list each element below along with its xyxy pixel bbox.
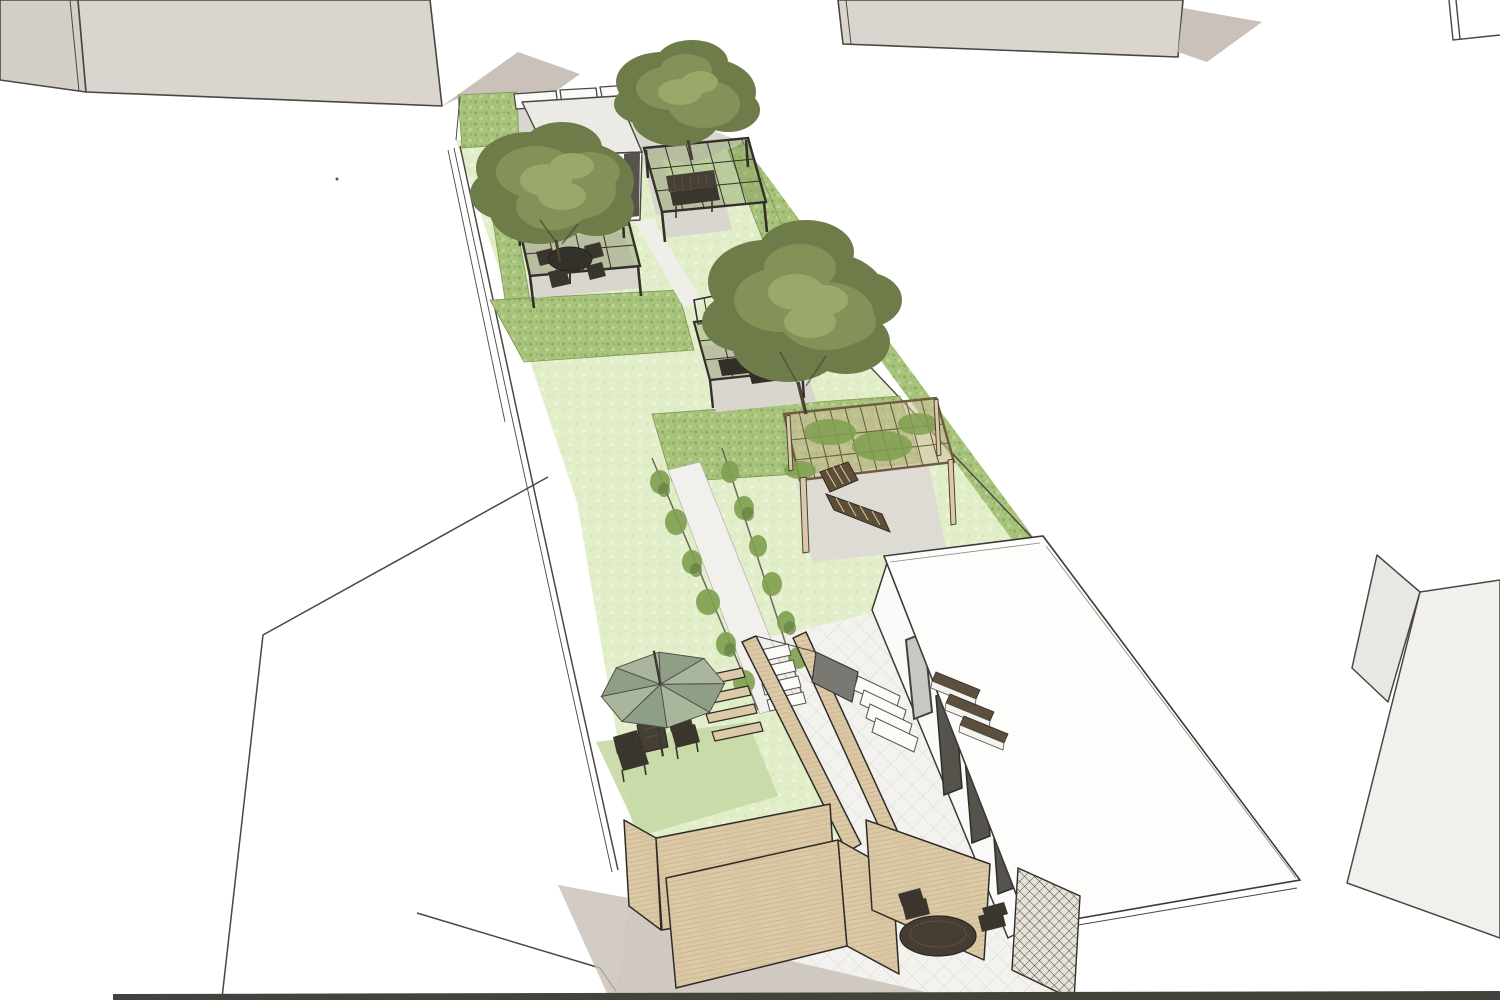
scene-canvas [0, 0, 1500, 1000]
hedge-band-upper [490, 290, 694, 362]
garden-rendering [0, 0, 1500, 1000]
patio-round-table [900, 916, 976, 956]
ground-speck [336, 178, 339, 181]
